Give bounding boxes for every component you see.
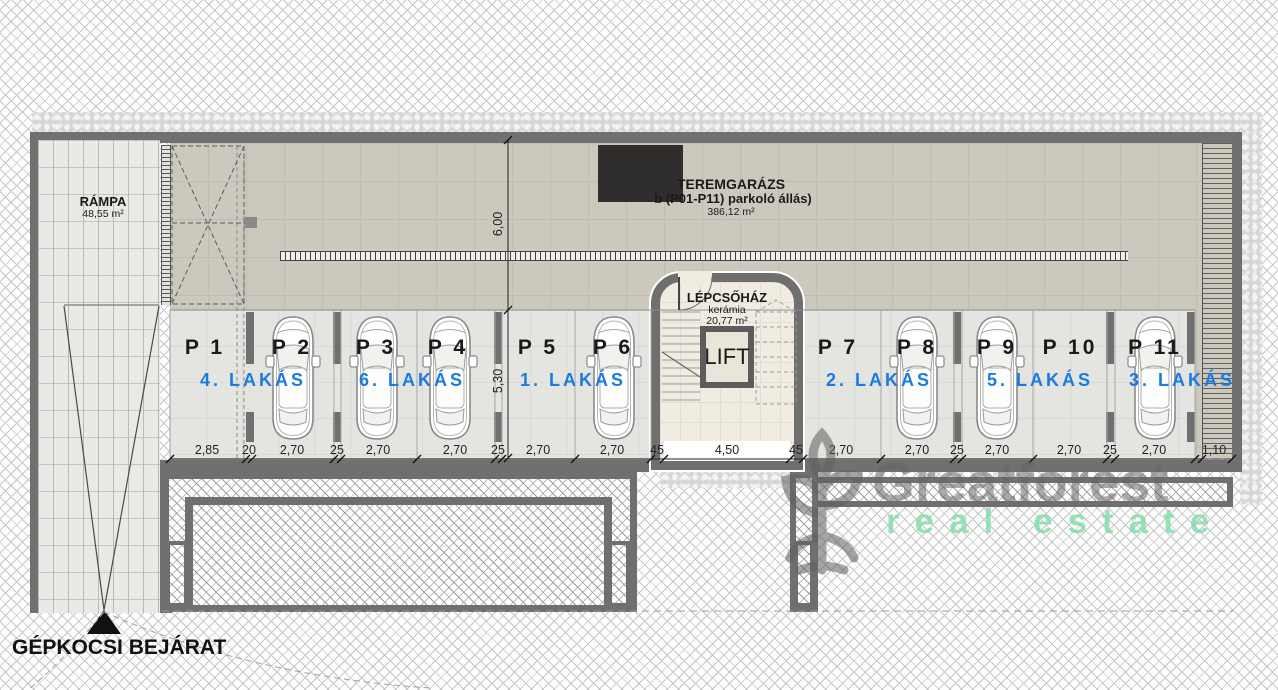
stall-label-p5: P 5 [518, 336, 558, 360]
dim-label: 2,70 [443, 443, 467, 457]
garage-title: TEREMGARÁZS [677, 176, 785, 192]
pillar [246, 412, 254, 442]
dim-label: 25 [330, 443, 344, 457]
garage-floor-plan: TEREMGARÁZS b (P01-P11) parkoló állás) 3… [0, 0, 1278, 690]
stall-label-p2: P 2 [272, 336, 312, 360]
staircase-area: 20,77 m² [706, 315, 747, 327]
garage-subtitle: b (P01-P11) parkoló állás) [654, 191, 812, 206]
pillar [953, 312, 961, 364]
dim-label: 2,85 [195, 443, 219, 457]
dim-label: 2,70 [526, 443, 550, 457]
drain-channel [280, 251, 1128, 261]
dim-label: 4,50 [715, 443, 739, 457]
stall-label-p3: P 3 [356, 336, 396, 360]
stall-label-p10: P 10 [1043, 336, 1098, 360]
apartment-label: 1. LAKÁS [520, 370, 626, 391]
apartment-label: 4. LAKÁS [200, 370, 306, 391]
pillar [333, 312, 341, 364]
dim-label: 2,70 [600, 443, 624, 457]
stall-label-p6: P 6 [593, 336, 633, 360]
apartment-label: 2. LAKÁS [826, 370, 932, 391]
ramp-label: RÁMPA [80, 194, 127, 209]
gravel-band-right [1240, 112, 1262, 505]
pillar [1187, 312, 1195, 364]
pillar [494, 412, 502, 442]
pillar [1106, 312, 1114, 364]
pillar [246, 312, 254, 364]
lower-structure-left-inner-u [185, 497, 612, 612]
drain-grate-strip [1202, 143, 1234, 458]
lift-label: LIFT [704, 344, 749, 370]
pillar [1187, 412, 1195, 442]
pillar [333, 412, 341, 442]
wall-top [30, 132, 1242, 143]
dim-label: 2,70 [280, 443, 304, 457]
dim-label: 20 [242, 443, 256, 457]
gravel-band-top [32, 112, 1262, 134]
pillar [1106, 412, 1114, 442]
dim-label: 1,10 [1202, 443, 1226, 457]
watermark-tagline: real estate [886, 502, 1224, 542]
dim-label: 25 [491, 443, 505, 457]
garage-area: 386,12 m² [707, 206, 754, 218]
stall-label-p7: P 7 [818, 336, 858, 360]
tree-logo-icon [762, 418, 882, 576]
pillar [953, 412, 961, 442]
ramp-area: 48,55 m² [82, 208, 123, 220]
wall-left [30, 132, 38, 613]
staircase-door-opening [678, 271, 712, 283]
stall-label-p4: P 4 [428, 336, 468, 360]
apartment-label: 5. LAKÁS [987, 370, 1093, 391]
dim-label: 45 [650, 443, 664, 457]
stall-label-p11: P 11 [1128, 336, 1182, 360]
stall-label-p1: P 1 [185, 336, 225, 360]
dim-label-vertical: 6,00 [491, 212, 505, 236]
entrance-arrow-icon [87, 610, 121, 634]
apartment-label: 3. LAKÁS [1129, 370, 1235, 391]
pillar [494, 312, 502, 364]
stall-label-p9: P 9 [977, 336, 1017, 360]
wall-right [1232, 132, 1242, 472]
apartment-label: 6. LAKÁS [359, 370, 465, 391]
entrance-label: GÉPKOCSI BEJÁRAT [12, 636, 226, 660]
lower-structure-cell [166, 541, 188, 607]
dim-label-vertical: 5,30 [491, 369, 505, 393]
dim-label: 2,70 [366, 443, 390, 457]
stall-label-p8: P 8 [897, 336, 937, 360]
garage-gate [161, 145, 171, 305]
lower-structure-cell [608, 541, 630, 607]
staircase-label: LÉPCSŐHÁZ [687, 290, 767, 305]
